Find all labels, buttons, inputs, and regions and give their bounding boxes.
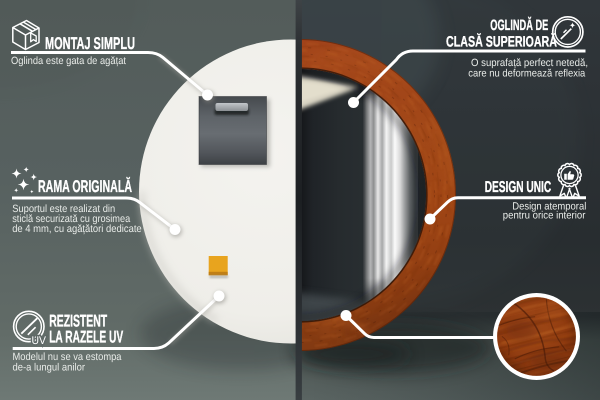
svg-text:MONTAJ SIMPLU: MONTAJ SIMPLU <box>45 34 135 53</box>
svg-text:de 4 mm, cu agățători dedicate: de 4 mm, cu agățători dedicate <box>12 223 142 235</box>
svg-text:UV: UV <box>32 335 47 347</box>
svg-text:DESIGN UNIC: DESIGN UNIC <box>485 179 552 196</box>
svg-text:Oglinda este gata de agățat: Oglinda este gata de agățat <box>11 55 126 67</box>
svg-text:LA RAZELE UV: LA RAZELE UV <box>49 328 123 347</box>
svg-text:care nu deformează reflexia: care nu deformează reflexia <box>468 68 585 80</box>
svg-text:CLASĂ SUPERIOARĂ: CLASĂ SUPERIOARĂ <box>446 33 557 51</box>
svg-text:de-a lungul anilor: de-a lungul anilor <box>13 362 86 374</box>
svg-text:pentru orice interior: pentru orice interior <box>503 210 586 222</box>
svg-text:RAMA ORIGINALĂ: RAMA ORIGINALĂ <box>38 176 132 196</box>
svg-text:OGLINDĂ DE: OGLINDĂ DE <box>490 16 548 34</box>
